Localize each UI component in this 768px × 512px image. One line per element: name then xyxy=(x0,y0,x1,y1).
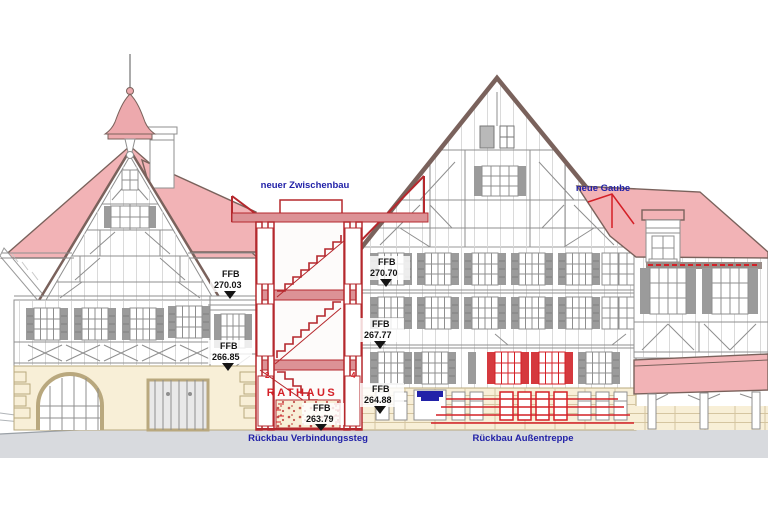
svg-text:FFB: FFB xyxy=(372,319,390,329)
arch-window xyxy=(38,374,102,430)
svg-text:263.79: 263.79 xyxy=(306,414,334,424)
roof-slab xyxy=(232,213,428,222)
axis-number-right: 4 xyxy=(351,371,356,380)
parapet-outline xyxy=(280,200,342,214)
svg-text:FFB: FFB xyxy=(313,403,331,413)
svg-text:267.77: 267.77 xyxy=(364,330,392,340)
axis-number-left: 2 xyxy=(265,371,270,380)
label-rueckbau-aussentreppe: Rückbau Außentreppe xyxy=(473,433,574,444)
label-rueckbau-verbindungssteg: Rückbau Verbindungssteg xyxy=(248,433,368,444)
elevation-svg: 2 4 RATHAUS FFB 270.03 FFB 266.85 FFB xyxy=(0,0,768,512)
svg-text:270.03: 270.03 xyxy=(214,280,242,290)
facade-windows-row-2 xyxy=(370,297,635,329)
elevation-drawing: 2 4 RATHAUS FFB 270.03 FFB 266.85 FFB xyxy=(0,0,768,512)
gable-window-pair xyxy=(104,206,156,228)
entrance-door xyxy=(148,380,208,430)
porch-canopy xyxy=(634,354,768,430)
right-building xyxy=(358,78,640,430)
svg-text:264.88: 264.88 xyxy=(364,395,392,405)
svg-text:FFB: FFB xyxy=(222,269,240,279)
svg-text:FFB: FFB xyxy=(378,257,396,267)
right-gable xyxy=(358,78,640,253)
rathaus-sign: RATHAUS xyxy=(267,387,337,399)
facade-windows-row-3 xyxy=(370,352,620,384)
label-neue-gaube: neue Gaube xyxy=(576,183,630,194)
svg-text:266.85: 266.85 xyxy=(212,352,240,362)
svg-text:FFB: FFB xyxy=(372,384,390,394)
svg-text:270.70: 270.70 xyxy=(370,268,398,278)
gable-window-main xyxy=(474,166,526,196)
roof-dormer xyxy=(642,210,684,262)
svg-text:FFB: FFB xyxy=(220,341,238,351)
label-neuer-zwischenbau: neuer Zwischenbau xyxy=(261,180,350,191)
left-stone-ground-floor xyxy=(14,366,256,430)
left-building xyxy=(0,54,260,430)
bell-tower-spire xyxy=(105,54,155,159)
